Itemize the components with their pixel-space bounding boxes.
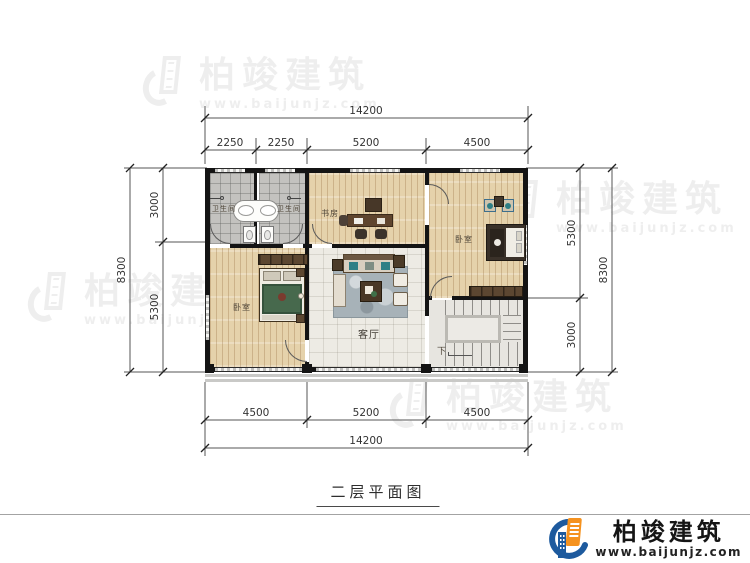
study-chair	[375, 229, 387, 239]
stair-treads-top	[445, 300, 521, 315]
armchair	[393, 273, 408, 287]
study-chair	[355, 229, 367, 239]
side-table	[332, 259, 343, 271]
floor-plan-page: 柏竣建筑 www.baijunjz.com 柏竣建筑 www.baijunjz.…	[0, 0, 750, 563]
stairs-arrow-line	[448, 355, 472, 356]
dim-left-seg-1: 3000	[149, 192, 161, 219]
room-label-bedroom-right: 卧室	[455, 234, 473, 245]
bed-right	[486, 224, 526, 261]
wall-study-bedroom-a	[425, 168, 429, 185]
window-bath2	[265, 168, 295, 173]
sofa	[343, 254, 395, 273]
window-bedroom-right	[460, 168, 500, 173]
dresser-bedroom-left	[258, 254, 308, 265]
nightstand	[296, 268, 305, 277]
floor-plan: 下 卫生间 卫生间 书房 卧室 卧室 客厅	[205, 168, 528, 372]
towel-bar-icon	[290, 198, 301, 199]
study-chair	[339, 215, 348, 226]
toilet-icon	[243, 226, 256, 243]
brand-logo[interactable]: 柏竣建筑 www.baijunjz.com	[546, 517, 742, 561]
side-table	[393, 255, 405, 268]
wall-bath-bottom-a	[230, 244, 283, 248]
towel-bar-knob	[220, 196, 224, 200]
study-cabinet	[365, 198, 382, 212]
footer-divider	[0, 514, 750, 515]
dim-bottom-total: 14200	[349, 435, 382, 447]
sill-band-1	[205, 374, 528, 377]
room-label-bath1: 卫生间	[212, 204, 236, 214]
stairs-down-label: 下	[437, 344, 447, 357]
sink-icon	[260, 205, 276, 216]
page-title: 二层平面图	[316, 481, 439, 507]
room-label-bedroom-left: 卧室	[233, 302, 251, 313]
room-label-study: 书房	[321, 208, 339, 219]
chaise-lounge	[333, 274, 346, 307]
pier-1	[205, 364, 214, 373]
window-bottom-3	[432, 367, 522, 372]
window-bottom-1	[215, 367, 302, 372]
room-label-bath2: 卫生间	[277, 204, 301, 214]
sink-icon	[238, 205, 254, 216]
sill-band-2	[205, 379, 528, 382]
wall-bath2-study	[305, 173, 309, 244]
dim-top-seg-3: 5200	[353, 137, 380, 149]
stair-treads-right	[503, 315, 521, 343]
brand-name: 柏竣建筑	[613, 519, 725, 545]
dim-top-seg-2: 2250	[268, 137, 295, 149]
dim-top-seg-4: 4500	[464, 137, 491, 149]
dim-bottom-seg-1: 4500	[243, 407, 270, 419]
wall-study-bedroom-b	[425, 225, 429, 316]
dim-bottom-seg-2: 5200	[353, 407, 380, 419]
wall-right	[523, 168, 528, 372]
dresser-bedroom-right	[469, 286, 523, 297]
armchair	[393, 292, 408, 306]
dim-right-seg-1: 5300	[566, 220, 578, 247]
dim-top-seg-1: 2250	[217, 137, 244, 149]
floor-lamp-icon	[298, 293, 304, 299]
towel-bar-knob	[287, 196, 291, 200]
pier-3	[421, 364, 431, 373]
dim-right-seg-2: 3000	[566, 322, 578, 349]
study-desk	[347, 214, 393, 227]
dim-bottom-seg-3: 4500	[464, 407, 491, 419]
dim-right-total: 8300	[598, 257, 610, 284]
brand-url: www.baijunjz.com	[595, 545, 742, 559]
room-label-living: 客厅	[358, 326, 380, 341]
window-bottom-2	[316, 367, 421, 372]
dim-top-total: 14200	[349, 105, 382, 117]
nightstand	[296, 314, 305, 323]
window-study	[350, 168, 400, 173]
wall-art	[494, 196, 504, 207]
window-bedroom-left	[205, 295, 210, 340]
toilet-icon	[261, 226, 274, 243]
pier-2	[302, 364, 312, 373]
dim-left-total: 8300	[116, 257, 128, 284]
brand-logo-icon	[546, 517, 588, 561]
window-bath1	[215, 168, 245, 173]
stair-landing	[445, 315, 501, 343]
coffee-table	[360, 281, 382, 302]
wall-study-bottom	[332, 244, 426, 248]
stair-treads-bottom	[445, 342, 521, 366]
dim-left-seg-2: 5300	[149, 294, 161, 321]
